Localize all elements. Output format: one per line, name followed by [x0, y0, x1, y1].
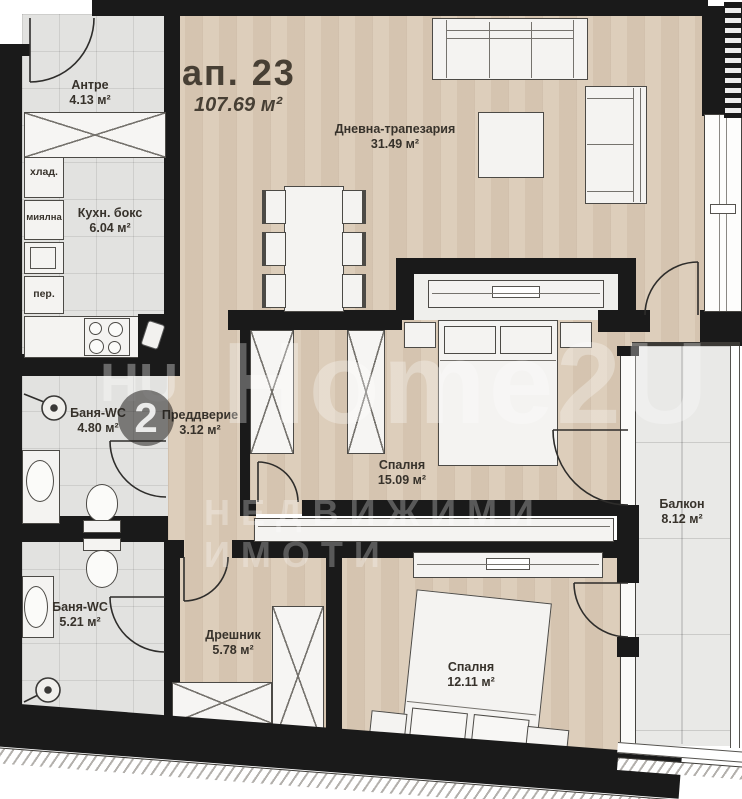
bedroom1-door-arc — [258, 462, 298, 502]
kitchen-label: Кухн. бокс 6.04 м² — [78, 206, 143, 237]
bath2-door-arc — [110, 597, 165, 652]
living-balcony-door-arc — [645, 262, 698, 315]
bath1-label: Баня-WC 4.80 м² — [70, 406, 126, 437]
bedroom1-name: Спалня — [378, 458, 426, 473]
antre-label: Антре 4.13 м² — [69, 78, 110, 109]
washer-label: пер. — [33, 288, 55, 300]
vestibule-name: Преддверие — [162, 408, 238, 423]
bedroom2-balcony-door-arc — [574, 583, 628, 637]
floor-plan: ап. 23 107.69 м² Антре 4.13 м² Кухн. бок… — [0, 0, 742, 799]
closet-area: 5.78 м² — [205, 643, 260, 658]
bath1-door-arc — [110, 441, 166, 497]
bath2-name: Баня-WC — [52, 600, 108, 615]
bedroom2-area: 12.11 м² — [447, 675, 494, 690]
dishwasher-label: миялна — [26, 212, 61, 223]
bedroom2-name: Спалня — [447, 660, 494, 675]
apartment-title: ап. 23 — [182, 52, 296, 94]
doors-overlay — [0, 0, 742, 799]
vestibule-area: 3.12 м² — [162, 423, 238, 438]
apartment-total-area: 107.69 м² — [194, 94, 282, 117]
bedroom2-label: Спалня 12.11 м² — [447, 660, 494, 691]
bedroom1-label: Спалня 15.09 м² — [378, 458, 426, 489]
balcony-area: 8.12 м² — [659, 512, 704, 527]
bath1-name: Баня-WC — [70, 406, 126, 421]
entry-door-arc — [30, 18, 94, 82]
fridge-label: хлад. — [30, 166, 58, 178]
bath1-shower-dot — [51, 405, 57, 411]
bath2-label: Баня-WC 5.21 м² — [52, 600, 108, 631]
closet-label: Дрешник 5.78 м² — [205, 628, 260, 659]
balcony-name: Балкон — [659, 497, 704, 512]
living-label: Дневна-трапезария 31.49 м² — [335, 122, 456, 153]
closet-door-arc — [184, 557, 228, 601]
antre-name: Антре — [69, 78, 110, 93]
bath1-shower-arm — [24, 394, 44, 402]
bedroom1-area: 15.09 м² — [378, 473, 426, 488]
bath2-shower-dot — [45, 687, 51, 693]
living-name: Дневна-трапезария — [335, 122, 456, 137]
antre-area: 4.13 м² — [69, 93, 110, 108]
vestibule-label: Преддверие 3.12 м² — [162, 408, 238, 439]
kitchen-name: Кухн. бокс — [78, 206, 143, 221]
balcony-label: Балкон 8.12 м² — [659, 497, 704, 528]
closet-name: Дрешник — [205, 628, 260, 643]
bedroom1-balcony-door-arc — [553, 430, 628, 505]
bath2-area: 5.21 м² — [52, 615, 108, 630]
kitchen-area: 6.04 м² — [78, 221, 143, 236]
bath1-area: 4.80 м² — [70, 421, 126, 436]
living-area: 31.49 м² — [335, 137, 456, 152]
